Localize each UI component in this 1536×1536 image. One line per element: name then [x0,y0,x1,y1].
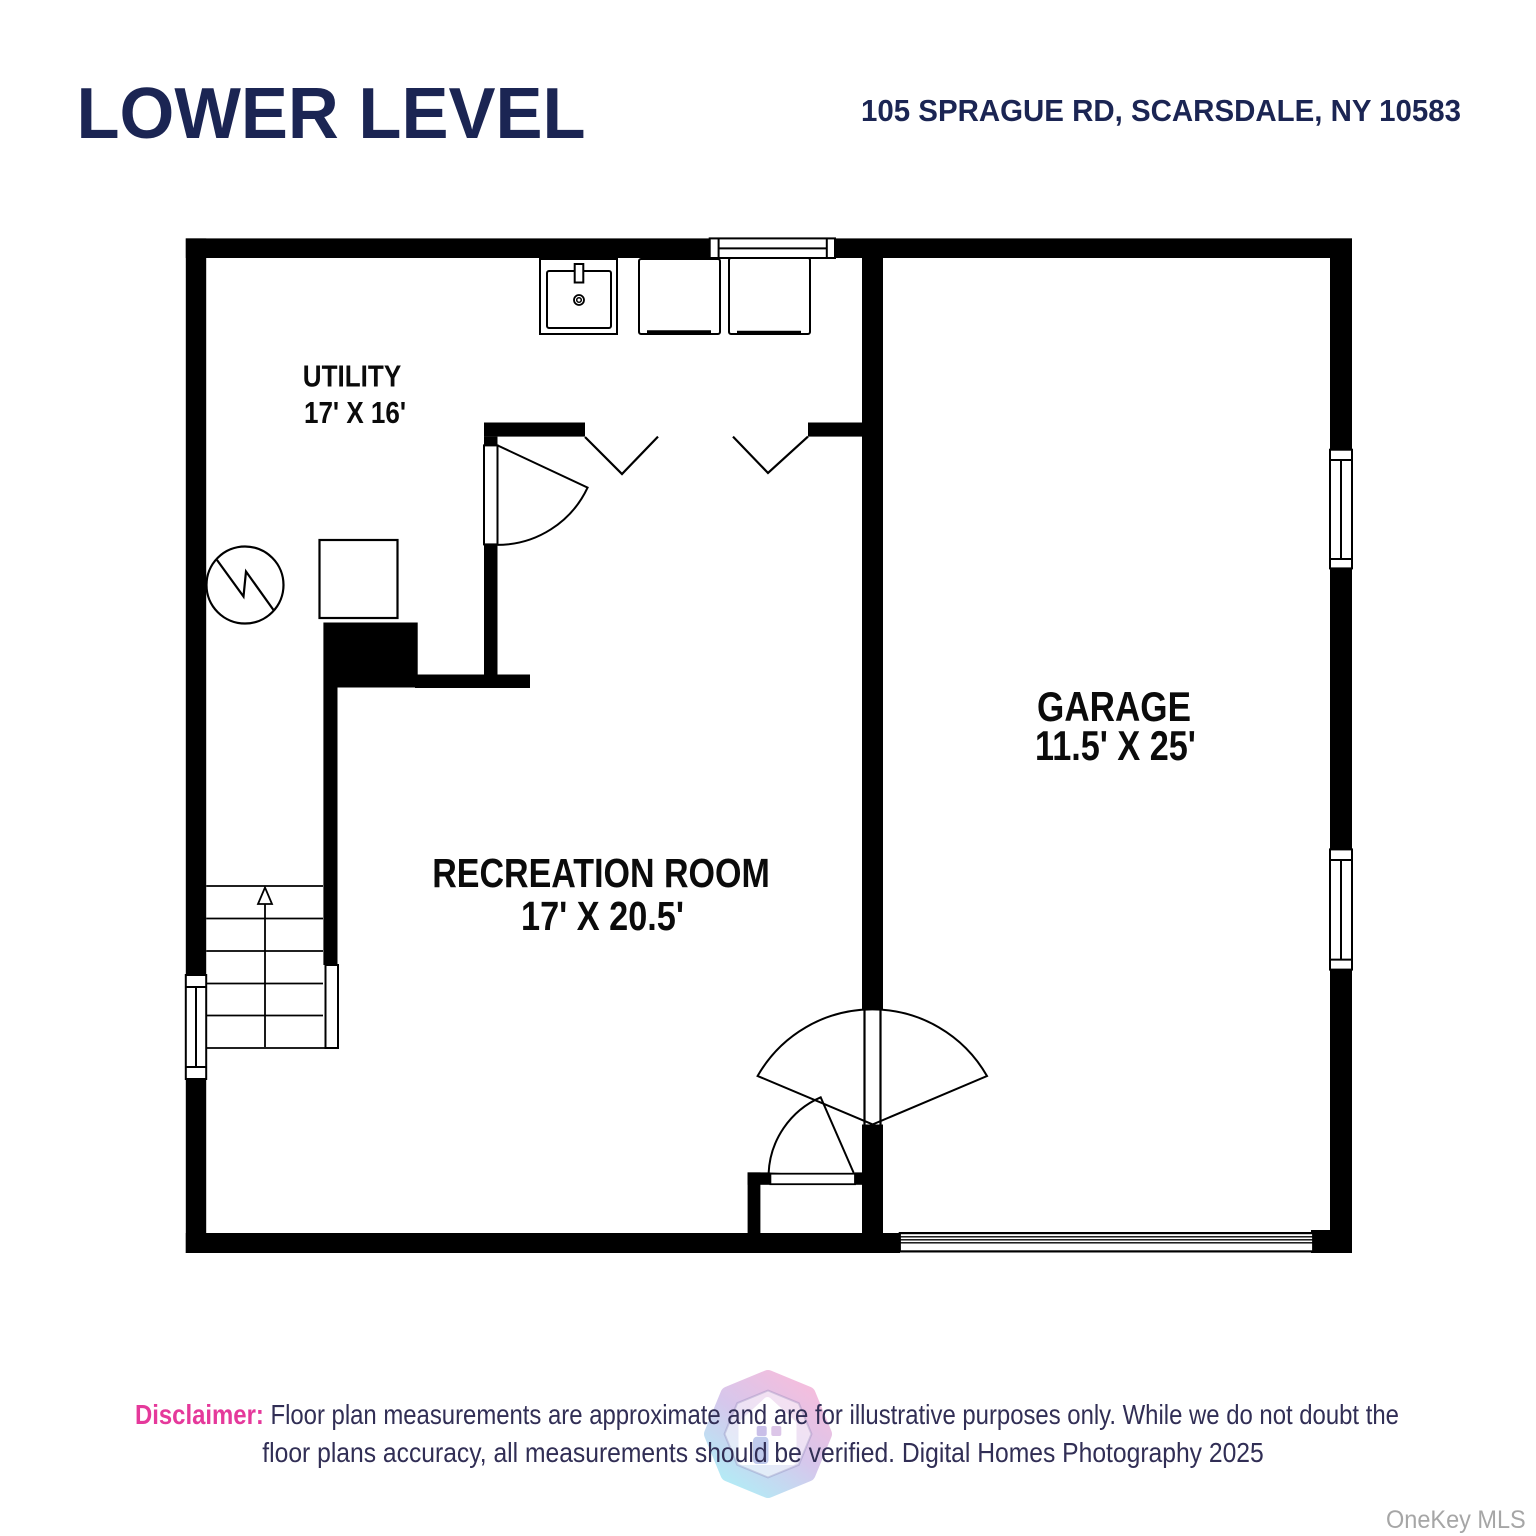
svg-text:11.5' X 25': 11.5' X 25' [1035,723,1196,770]
svg-text:Disclaimer: Floor plan measure: Disclaimer: Floor plan measurements are … [135,1398,1399,1430]
svg-text:OneKey MLS: OneKey MLS [1386,1506,1526,1534]
svg-text:17' X 16': 17' X 16' [304,396,406,430]
svg-text:105 SPRAGUE RD, SCARSDALE, NY: 105 SPRAGUE RD, SCARSDALE, NY 10583 [861,95,1461,129]
svg-text:LOWER LEVEL: LOWER LEVEL [77,73,586,154]
svg-text:17' X 20.5': 17' X 20.5' [521,894,684,940]
svg-text:RECREATION ROOM: RECREATION ROOM [432,850,770,896]
svg-text:UTILITY: UTILITY [303,360,401,394]
svg-text:floor plans accuracy, all meas: floor plans accuracy, all measurements s… [262,1437,1263,1469]
